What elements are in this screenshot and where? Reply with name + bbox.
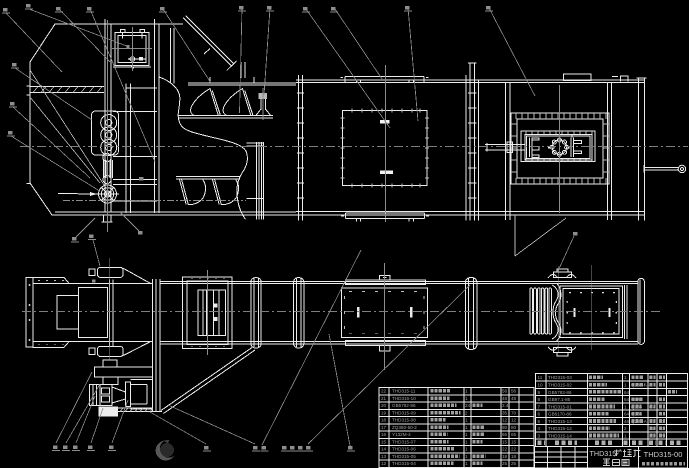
svg-text:10: 10 (538, 383, 544, 388)
svg-text:THD315: THD315 (590, 449, 617, 458)
svg-text:20: 20 (381, 403, 387, 408)
svg-text:GB97.1-85: GB97.1-85 (548, 397, 571, 402)
svg-text:64: 64 (624, 397, 630, 402)
svg-text:22: 22 (381, 389, 387, 394)
svg-text:13: 13 (381, 454, 387, 459)
svg-text:1: 1 (465, 389, 468, 394)
svg-text:5: 5 (538, 419, 541, 424)
svg-text:1: 1 (624, 433, 627, 438)
svg-text:22: 22 (511, 447, 517, 452)
svg-text:THD315-01: THD315-01 (548, 404, 572, 409)
svg-text:64: 64 (624, 412, 630, 417)
svg-text:48: 48 (502, 396, 508, 401)
svg-text:GB6170-86: GB6170-86 (548, 412, 572, 417)
svg-text:70: 70 (511, 411, 517, 416)
svg-text:46: 46 (624, 419, 630, 424)
svg-text:11: 11 (538, 375, 543, 380)
svg-text:15: 15 (502, 440, 508, 445)
svg-text:16: 16 (381, 432, 387, 437)
svg-text:56: 56 (511, 389, 517, 394)
svg-text:1: 1 (465, 454, 468, 459)
svg-text:2: 2 (624, 426, 627, 431)
svg-text:15: 15 (381, 440, 387, 445)
svg-text:12: 12 (381, 461, 387, 466)
svg-text:12: 12 (502, 418, 508, 423)
svg-text:80: 80 (502, 425, 508, 430)
svg-text:25: 25 (511, 461, 517, 466)
svg-text:THD315-11: THD315-11 (392, 389, 416, 394)
svg-text:8: 8 (538, 397, 541, 402)
svg-text:1: 1 (465, 396, 468, 401)
svg-text:14: 14 (381, 447, 387, 452)
svg-text:THD315-02: THD315-02 (548, 383, 572, 388)
svg-text:1: 1 (465, 425, 468, 430)
svg-text:THD315-13: THD315-13 (548, 419, 572, 424)
svg-text:THD315-05: THD315-05 (392, 454, 416, 459)
svg-text:2: 2 (465, 411, 468, 416)
svg-text:1: 1 (465, 432, 468, 437)
svg-text:25: 25 (502, 461, 508, 466)
svg-text:THD315-06: THD315-06 (392, 447, 416, 452)
svg-text:1: 1 (624, 383, 627, 388)
svg-text:48: 48 (511, 396, 517, 401)
svg-text:1: 1 (465, 440, 468, 445)
svg-text:THD315-03: THD315-03 (548, 375, 572, 380)
svg-text:THD315-00: THD315-00 (644, 450, 683, 459)
svg-text:ZQ350-50-2: ZQ350-50-2 (392, 425, 417, 430)
svg-text:35: 35 (502, 411, 508, 416)
svg-text:Y132M-4: Y132M-4 (392, 432, 411, 437)
svg-text:THD315-14: THD315-14 (548, 433, 572, 438)
svg-text:80: 80 (511, 425, 517, 430)
svg-text:THD315-08: THD315-08 (392, 418, 416, 423)
svg-text:6: 6 (538, 412, 541, 417)
svg-text:1: 1 (465, 418, 468, 423)
svg-text:21: 21 (381, 396, 387, 401)
svg-text:9: 9 (538, 390, 541, 395)
svg-text:THD315-04: THD315-04 (392, 461, 416, 466)
svg-text:56: 56 (502, 389, 508, 394)
svg-text:THD315-09: THD315-09 (392, 411, 416, 416)
svg-text:THD315-10: THD315-10 (392, 396, 416, 401)
svg-text:19: 19 (381, 411, 387, 416)
svg-text:1: 1 (465, 461, 468, 466)
svg-text:24: 24 (465, 403, 471, 408)
svg-text:7: 7 (538, 404, 541, 409)
svg-text:22: 22 (502, 447, 508, 452)
svg-text:2.4: 2.4 (502, 403, 509, 408)
svg-text:18: 18 (511, 454, 517, 459)
svg-text:3: 3 (538, 433, 541, 438)
svg-text:THD315-07: THD315-07 (392, 440, 416, 445)
svg-text:15: 15 (511, 440, 517, 445)
svg-text:17: 17 (381, 425, 387, 430)
svg-text:18: 18 (502, 454, 508, 459)
svg-text:GB5782-86: GB5782-86 (392, 403, 416, 408)
svg-text:18: 18 (381, 418, 387, 423)
svg-text:1: 1 (624, 375, 627, 380)
svg-text:THD315-12: THD315-12 (548, 426, 572, 431)
svg-text:64: 64 (624, 390, 630, 395)
svg-text:GB5783-86: GB5783-86 (548, 390, 572, 395)
svg-text:12: 12 (511, 418, 517, 423)
svg-text:65: 65 (511, 432, 517, 437)
svg-text:1: 1 (465, 447, 468, 452)
svg-text:65: 65 (502, 432, 508, 437)
svg-text:4: 4 (538, 426, 541, 431)
svg-text:1: 1 (624, 404, 627, 409)
